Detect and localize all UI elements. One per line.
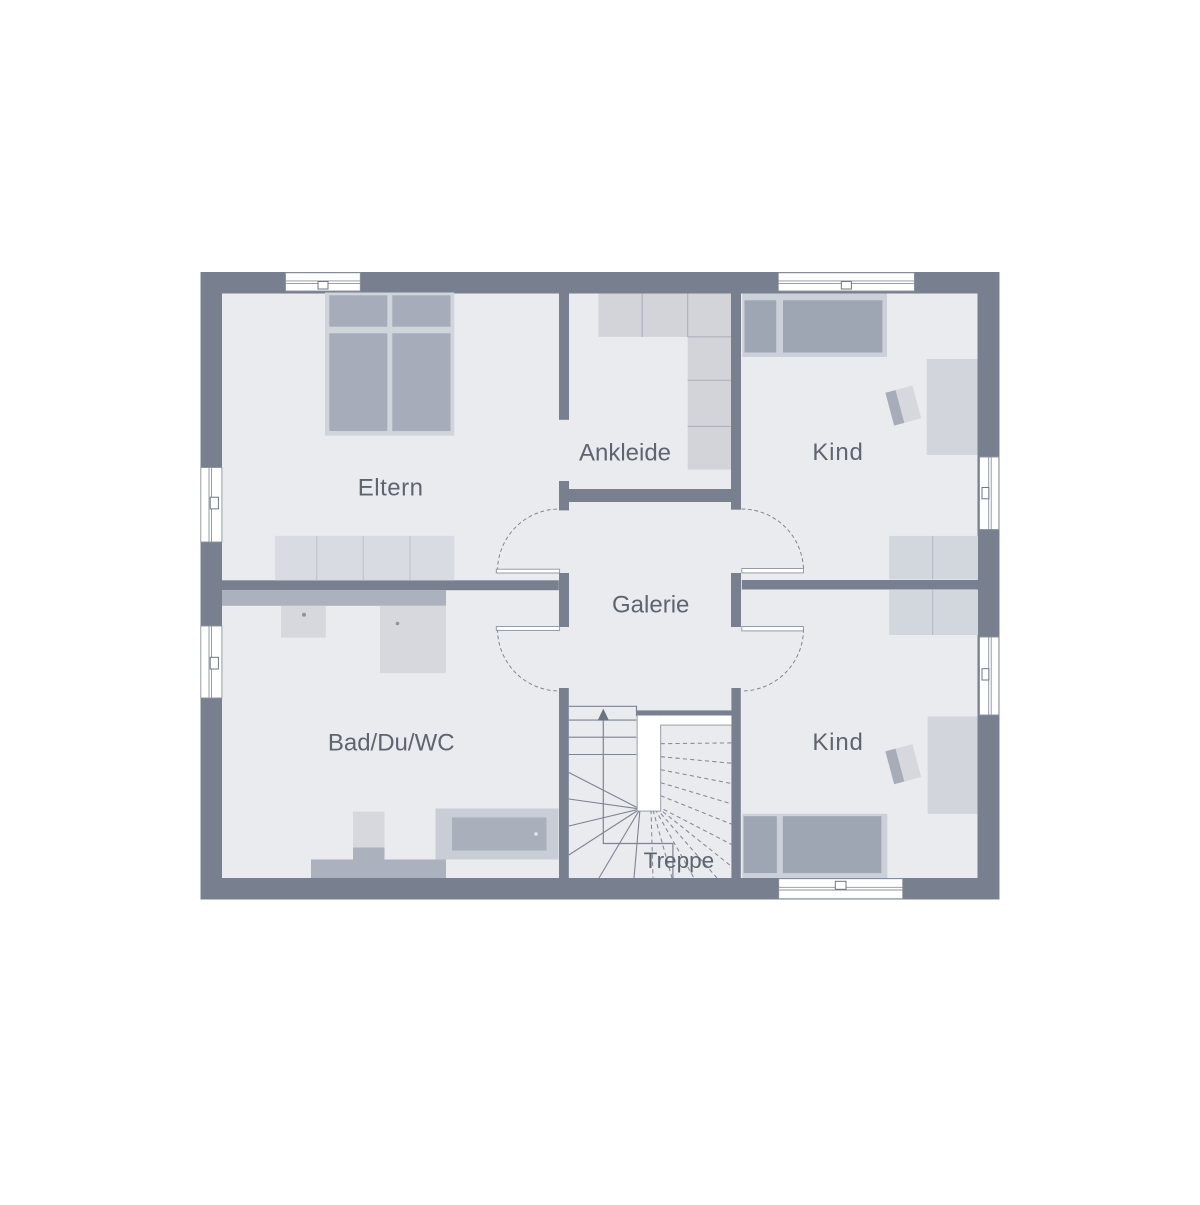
svg-text:Kind: Kind [812, 729, 863, 756]
svg-text:Galerie: Galerie [612, 592, 689, 619]
svg-text:Treppe: Treppe [644, 848, 714, 873]
svg-text:Bad/Du/WC: Bad/Du/WC [328, 729, 455, 756]
svg-text:Eltern: Eltern [358, 475, 424, 502]
svg-text:Kind: Kind [812, 439, 863, 466]
svg-text:Ankleide: Ankleide [579, 440, 671, 467]
